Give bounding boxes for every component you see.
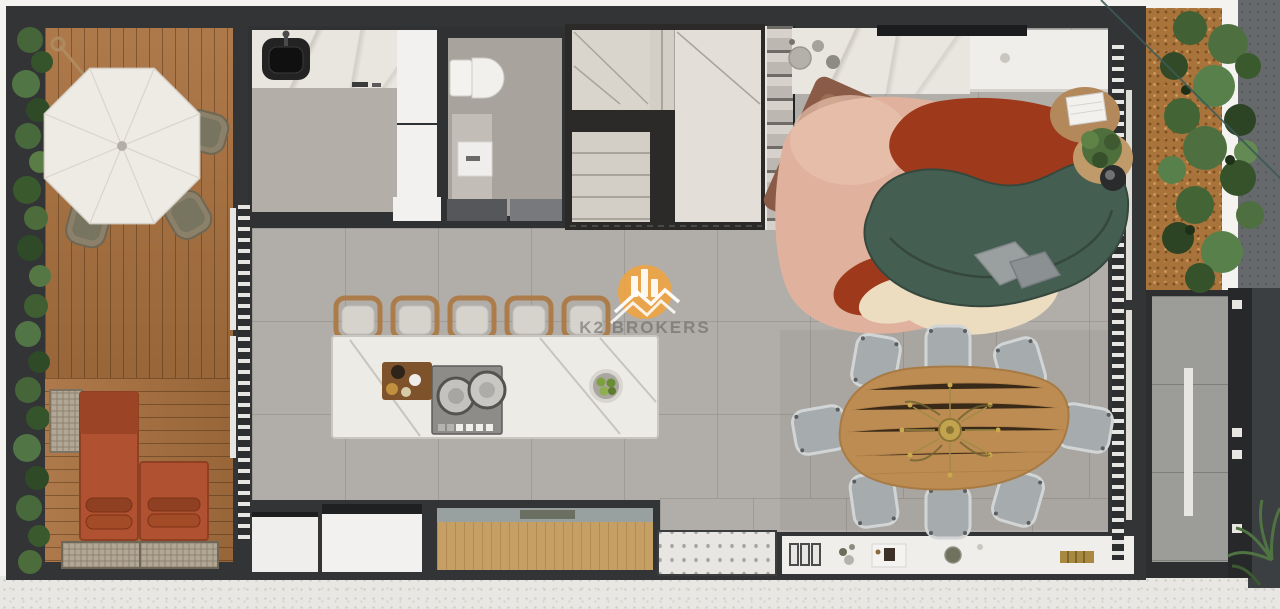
dining-floor-shade xyxy=(780,330,1108,530)
bathroom-tall-cabinet-lower xyxy=(397,125,437,202)
stairs-winder xyxy=(572,30,650,110)
refrigerator-unit xyxy=(322,504,422,572)
garden-bed xyxy=(1146,8,1222,290)
floor-plan-canvas: K2 BROKERS xyxy=(0,0,1280,609)
stairs-upper-treads xyxy=(650,30,675,110)
passage-door-leaf xyxy=(1184,368,1193,516)
garden-glass-panel-1 xyxy=(1126,90,1132,300)
garden-glass-panel-2 xyxy=(1126,310,1132,520)
deck-floor-upper xyxy=(45,28,233,378)
tv-bar xyxy=(877,25,1027,36)
bathroom-block xyxy=(248,26,565,228)
deck-glass-panel-1 xyxy=(230,208,236,330)
exterior-pavement-right xyxy=(1238,0,1280,292)
stairs-block xyxy=(565,24,765,230)
bathroom-tall-cabinet-upper xyxy=(397,30,437,125)
deck-floor-lower xyxy=(45,378,233,562)
fence-hinge-2 xyxy=(1232,428,1242,437)
stairs-landing xyxy=(675,30,761,222)
living-sideboard xyxy=(970,30,1108,92)
garden-sliding-door-track xyxy=(1112,45,1124,560)
kitchen-wall-appliance-2 xyxy=(510,199,562,221)
fence-hinge-3 xyxy=(1232,450,1242,459)
shower-zone xyxy=(452,114,492,206)
exterior-dark-right xyxy=(1248,288,1280,588)
counter-item-dark xyxy=(520,510,575,519)
bathroom-door-leaf xyxy=(393,197,441,221)
deck-glass-panel-2 xyxy=(230,336,236,458)
dish-drain-tray xyxy=(657,530,777,576)
stairs-lower-flight xyxy=(572,132,650,222)
laundry-appliance xyxy=(252,512,318,572)
fence-hinge-4 xyxy=(1232,524,1242,533)
deck-sliding-door-track xyxy=(238,205,250,540)
exterior-concrete-strip xyxy=(0,576,1280,609)
watermark-brand-text: K2 BROKERS xyxy=(565,318,725,338)
sink-counter xyxy=(782,536,1134,574)
bathroom-floor xyxy=(252,88,397,212)
living-marble-console xyxy=(792,28,970,94)
kitchen-wall-appliance-1 xyxy=(447,199,507,221)
wood-base-cabinet xyxy=(437,522,653,570)
fence-hinge-1 xyxy=(1232,300,1242,309)
stairs-descending-flight xyxy=(765,26,795,230)
